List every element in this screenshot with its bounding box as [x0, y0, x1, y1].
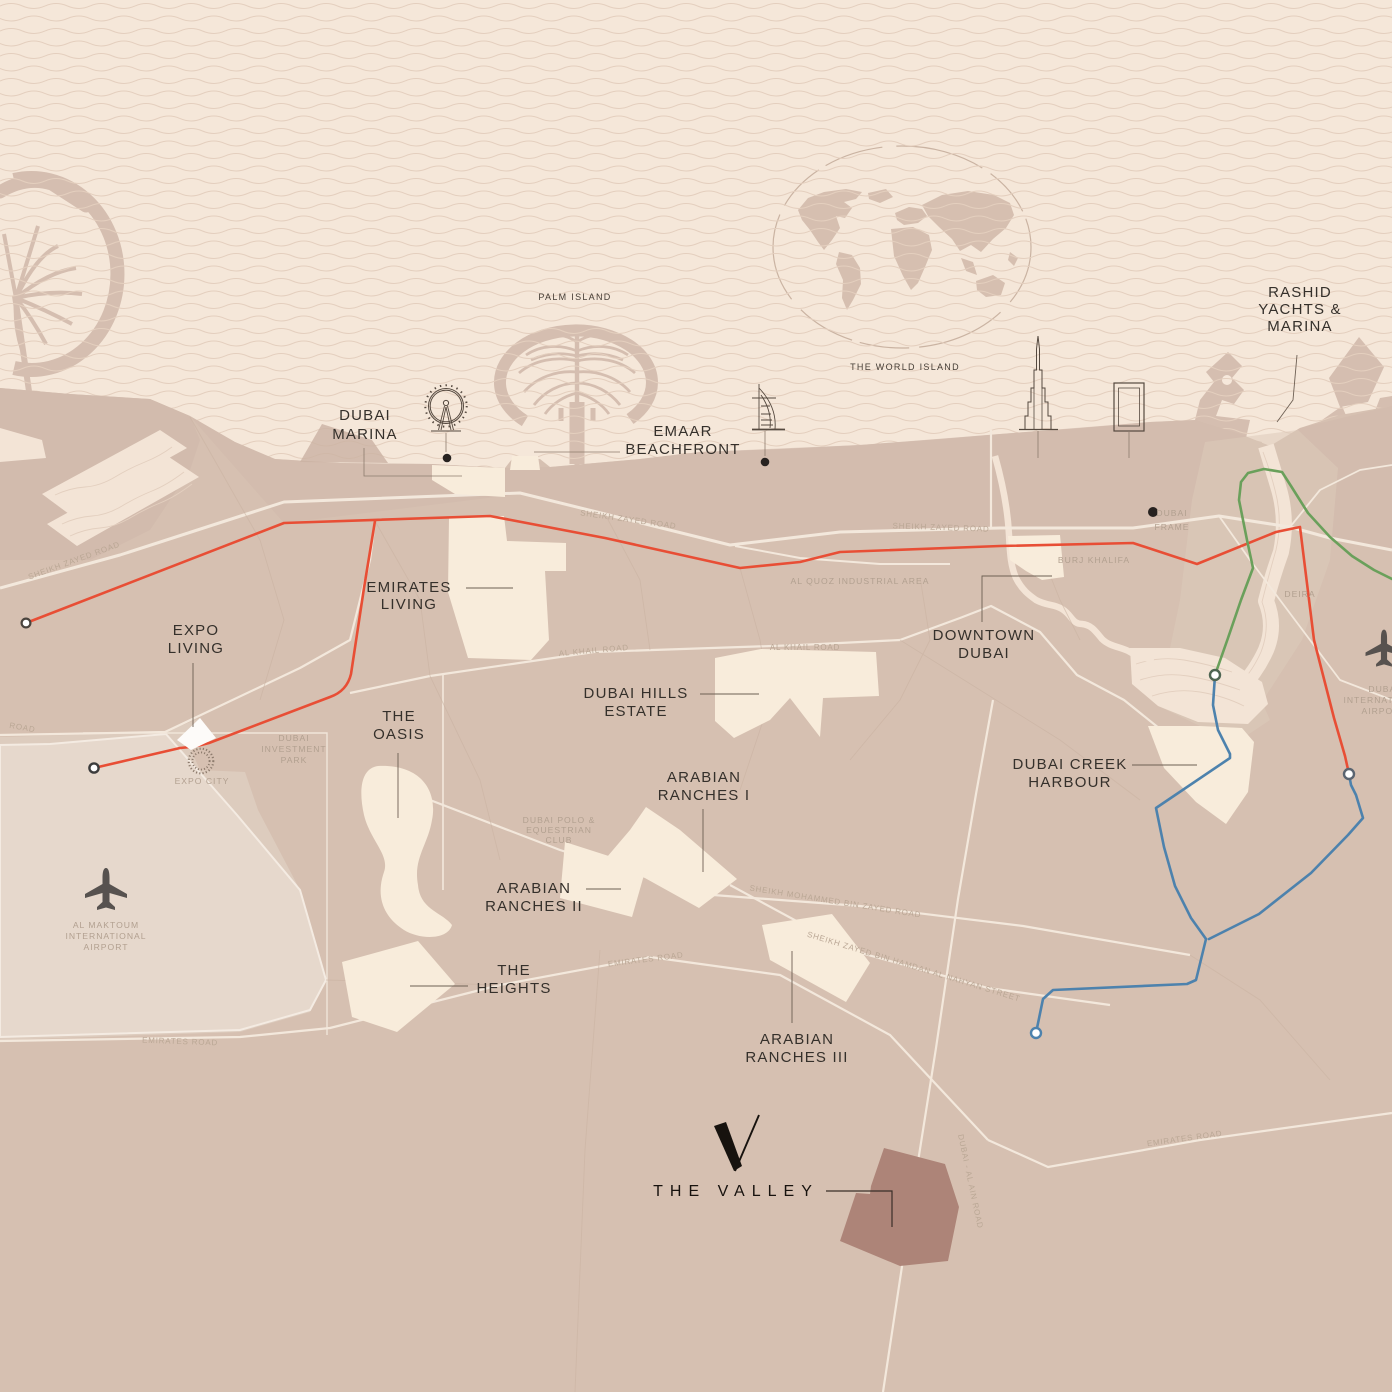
svg-text:LIVING: LIVING: [168, 640, 224, 657]
svg-text:EMAAR: EMAAR: [653, 423, 712, 440]
svg-text:RANCHES III: RANCHES III: [745, 1049, 848, 1066]
svg-text:DUBAI: DUBAI: [958, 645, 1010, 662]
svg-text:DUBAI: DUBAI: [339, 407, 391, 424]
svg-text:DOWNTOWN: DOWNTOWN: [933, 627, 1036, 644]
svg-text:INTERNATIONAL: INTERNATIONAL: [65, 931, 146, 941]
svg-text:ARABIAN: ARABIAN: [667, 769, 741, 786]
svg-text:PARK: PARK: [281, 755, 308, 765]
svg-text:THE VALLEY: THE VALLEY: [653, 1183, 819, 1200]
svg-text:HEIGHTS: HEIGHTS: [476, 980, 551, 997]
svg-text:AL MAKTOUM: AL MAKTOUM: [73, 920, 139, 930]
svg-text:INTERNATIONAL: INTERNATIONAL: [1343, 695, 1392, 705]
svg-text:DUBAI: DUBAI: [278, 733, 309, 743]
svg-text:BURJ KHALIFA: BURJ KHALIFA: [1058, 555, 1130, 565]
svg-text:AL QUOZ INDUSTRIAL AREA: AL QUOZ INDUSTRIAL AREA: [791, 576, 930, 586]
svg-text:OASIS: OASIS: [373, 726, 425, 743]
svg-text:YACHTS &: YACHTS &: [1258, 301, 1342, 318]
svg-text:THE: THE: [382, 708, 416, 725]
svg-text:THE: THE: [497, 962, 531, 979]
svg-text:CLUB: CLUB: [546, 835, 573, 845]
svg-text:EQUESTRIAN: EQUESTRIAN: [526, 825, 592, 835]
svg-text:HARBOUR: HARBOUR: [1028, 774, 1111, 791]
svg-text:EXPO CITY: EXPO CITY: [175, 776, 230, 786]
svg-text:RASHID: RASHID: [1268, 284, 1332, 301]
svg-text:DEIRA: DEIRA: [1284, 589, 1315, 599]
svg-text:EXPO: EXPO: [173, 622, 219, 639]
svg-text:DUBAI HILLS: DUBAI HILLS: [584, 685, 689, 702]
svg-text:MARINA: MARINA: [1267, 318, 1333, 335]
svg-text:ARABIAN: ARABIAN: [760, 1031, 834, 1048]
svg-text:LIVING: LIVING: [381, 596, 437, 613]
svg-text:ARABIAN: ARABIAN: [497, 880, 571, 897]
svg-text:PALM ISLAND: PALM ISLAND: [538, 292, 611, 302]
svg-text:RANCHES I: RANCHES I: [658, 787, 750, 804]
svg-text:DUBAI: DUBAI: [1368, 684, 1392, 694]
svg-text:DUBAI POLO &: DUBAI POLO &: [523, 815, 596, 825]
svg-text:ESTATE: ESTATE: [604, 703, 667, 720]
svg-text:AIRPORT: AIRPORT: [1361, 706, 1392, 716]
svg-text:THE WORLD ISLAND: THE WORLD ISLAND: [850, 362, 960, 372]
svg-text:EMIRATES: EMIRATES: [366, 579, 451, 596]
svg-text:DUBAI: DUBAI: [1156, 508, 1187, 518]
svg-text:MARINA: MARINA: [332, 426, 398, 443]
svg-text:BEACHFRONT: BEACHFRONT: [625, 441, 740, 458]
svg-text:AL KHAIL ROAD: AL KHAIL ROAD: [770, 643, 840, 652]
svg-text:RANCHES II: RANCHES II: [485, 898, 583, 915]
svg-text:AIRPORT: AIRPORT: [83, 942, 128, 952]
svg-text:DUBAI CREEK: DUBAI CREEK: [1013, 756, 1128, 773]
svg-text:INVESTMENT: INVESTMENT: [261, 744, 326, 754]
svg-text:FRAME: FRAME: [1154, 522, 1189, 532]
